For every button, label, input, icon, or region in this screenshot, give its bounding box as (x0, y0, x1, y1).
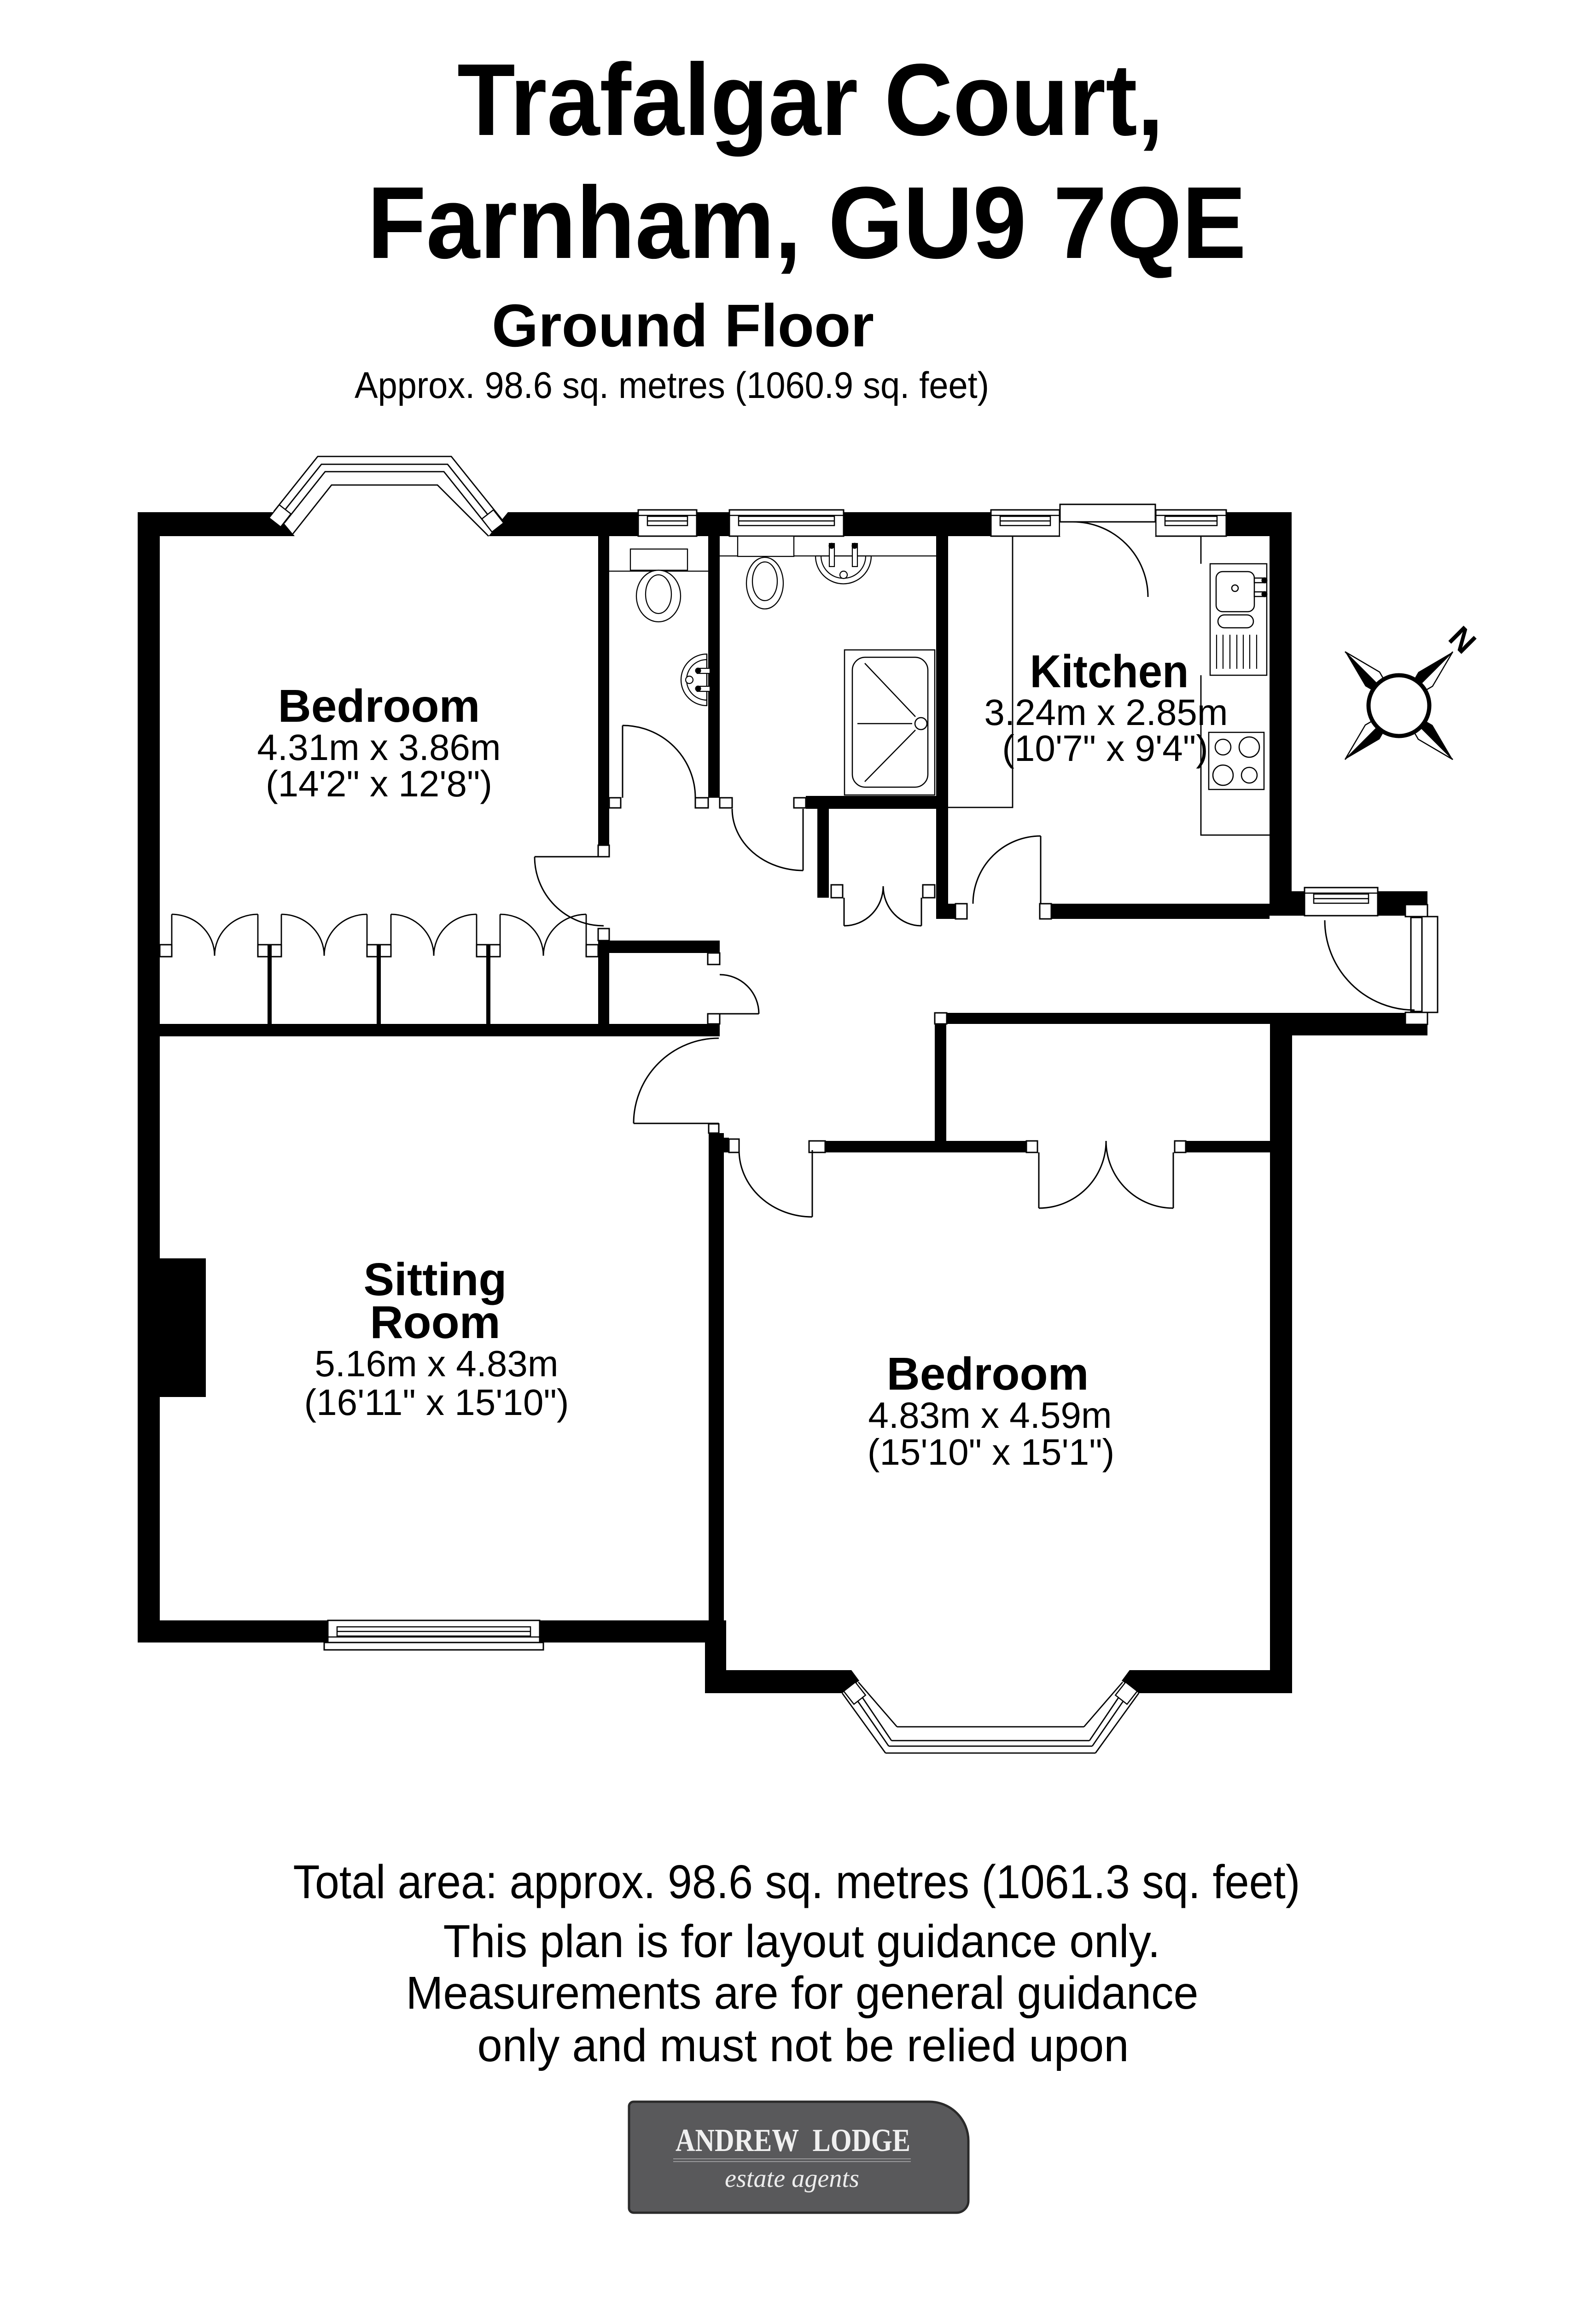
svg-text:4.83m x 4.59m: 4.83m x 4.59m (868, 1395, 1112, 1436)
svg-text:Room: Room (370, 1297, 500, 1348)
svg-text:Farnham, GU9 7QE: Farnham, GU9 7QE (367, 166, 1247, 280)
svg-text:Ground Floor: Ground Floor (492, 292, 874, 359)
svg-text:This plan is for layout guidan: This plan is for layout guidance only. (443, 1916, 1160, 1967)
svg-text:ANDREW LODGE: ANDREW LODGE (676, 2123, 910, 2158)
svg-text:Bedroom: Bedroom (887, 1348, 1089, 1400)
svg-text:Total area: approx. 98.6 sq. m: Total area: approx. 98.6 sq. metres (106… (293, 1855, 1300, 1908)
svg-text:(15'10" x 15'1"): (15'10" x 15'1") (868, 1432, 1115, 1473)
svg-text:Trafalgar Court,: Trafalgar Court, (457, 43, 1164, 157)
svg-text:Approx. 98.6 sq. metres (1060.: Approx. 98.6 sq. metres (1060.9 sq. feet… (355, 365, 989, 406)
svg-text:3.24m x 2.85m: 3.24m x 2.85m (984, 692, 1228, 733)
svg-text:(16'11" x 15'10"): (16'11" x 15'10") (304, 1382, 569, 1423)
svg-text:only and must not be relied up: only and must not be relied upon (478, 2020, 1129, 2071)
svg-text:estate agents: estate agents (725, 2164, 859, 2193)
svg-text:(10'7" x 9'4"): (10'7" x 9'4") (1002, 728, 1208, 769)
svg-text:5.16m x 4.83m: 5.16m x 4.83m (315, 1343, 558, 1384)
svg-text:(14'2" x 12'8"): (14'2" x 12'8") (266, 763, 492, 804)
svg-text:Kitchen: Kitchen (1030, 646, 1189, 697)
svg-text:Measurements are for general g: Measurements are for general guidance (406, 1967, 1199, 2019)
svg-text:Bedroom: Bedroom (278, 680, 480, 732)
svg-text:4.31m x 3.86m: 4.31m x 3.86m (257, 727, 501, 768)
